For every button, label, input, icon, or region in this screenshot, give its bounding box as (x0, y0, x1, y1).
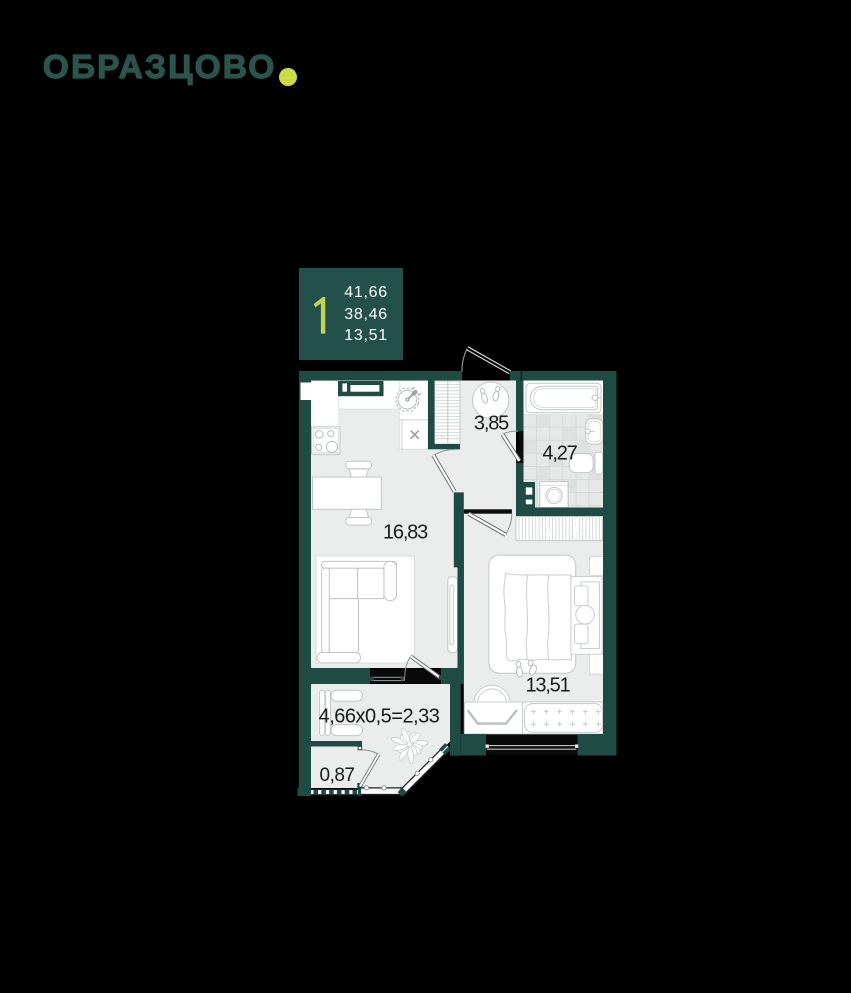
svg-text:4,66x0,5=2,33: 4,66x0,5=2,33 (319, 705, 440, 727)
svg-text:3,85: 3,85 (474, 412, 509, 434)
svg-text:13,51: 13,51 (525, 674, 570, 696)
svg-text:4,27: 4,27 (542, 442, 577, 464)
svg-text:16,83: 16,83 (383, 521, 428, 543)
svg-text:0,87: 0,87 (320, 765, 355, 786)
